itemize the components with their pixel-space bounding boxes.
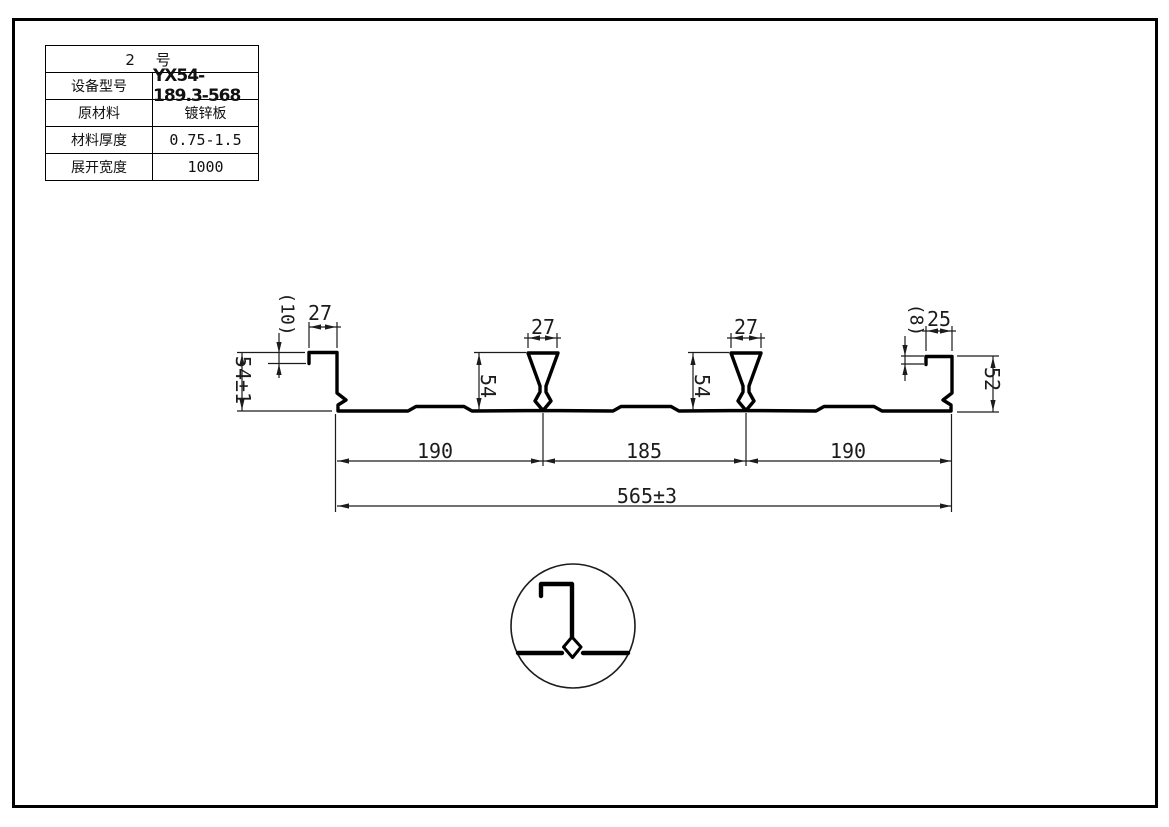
- dim-right-top: 25: [927, 307, 951, 331]
- seam-detail-circle: [511, 564, 635, 688]
- dim-rib2-height: 54: [690, 374, 714, 398]
- dim-span-mid: 185: [626, 439, 662, 463]
- dim-left-top: 27: [308, 301, 332, 325]
- dim-right-lip: (8): [906, 304, 927, 337]
- dimension-arrows: [239, 324, 995, 508]
- drawing-sheet: 2 号 设备型号 YX54-189.3-568 原材料 镀锌板 材料厚度 0.7…: [0, 0, 1169, 827]
- dim-span-right: 190: [830, 439, 866, 463]
- profile-outline: [309, 353, 952, 412]
- dim-rib1-height: 54: [476, 374, 500, 398]
- dim-left-height: 54±1: [231, 356, 255, 404]
- dim-overall: 565±3: [617, 484, 677, 508]
- detail-seam-profile: [518, 584, 628, 658]
- dim-rib1-top: 27: [531, 315, 555, 339]
- dim-span-left: 190: [417, 439, 453, 463]
- dim-rib2-top: 27: [734, 315, 758, 339]
- dim-right-height: 52: [980, 367, 1004, 391]
- dim-left-lip: (10): [277, 292, 298, 335]
- profile-drawing: [0, 0, 1169, 827]
